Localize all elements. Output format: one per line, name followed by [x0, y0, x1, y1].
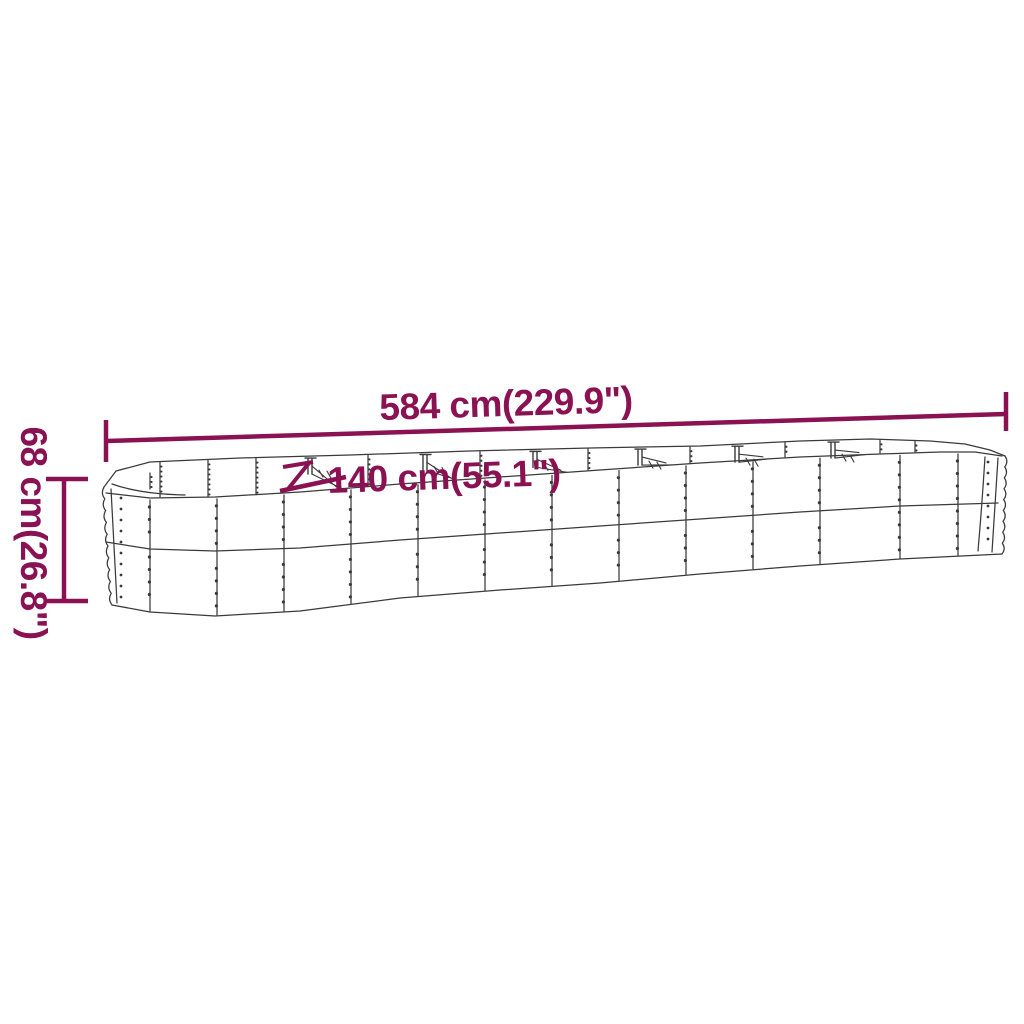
dimension-diagram-page: 584 cm(229.9") 140 cm(55.1") 68 cm(26.8"…	[0, 0, 1024, 1024]
width-dimension-label: 140 cm(55.1")	[327, 452, 562, 502]
product-line-drawing	[0, 0, 1024, 1024]
length-dimension-label: 584 cm(229.9")	[379, 379, 633, 429]
height-dimension-label: 68 cm(26.8")	[12, 426, 54, 639]
